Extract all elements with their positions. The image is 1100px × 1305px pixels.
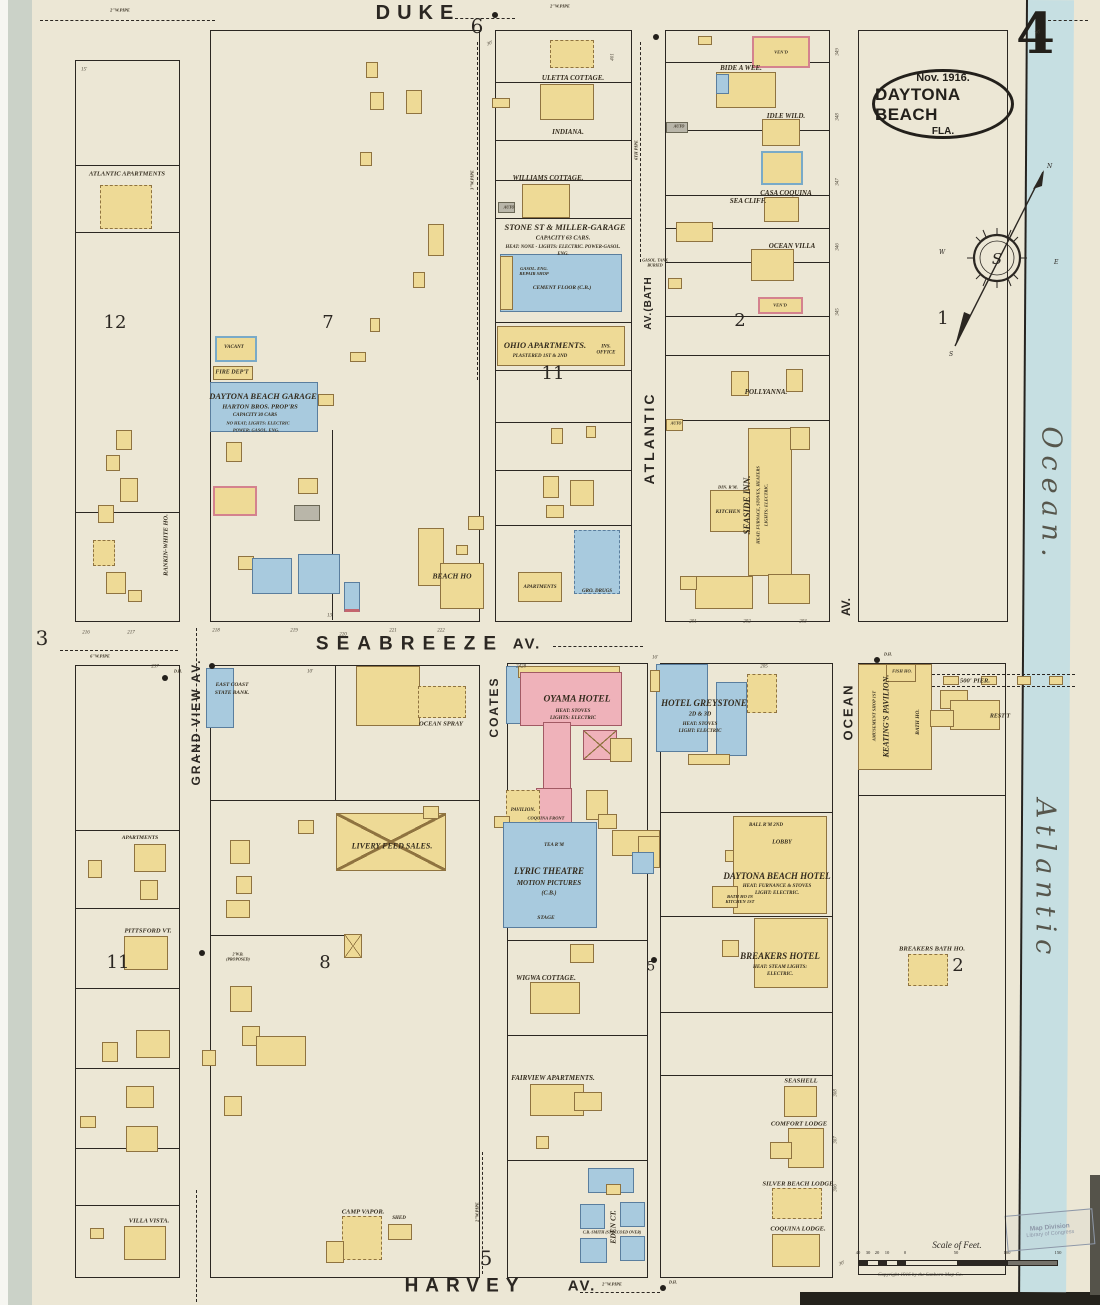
map-label: OCEAN VILLA — [769, 242, 815, 250]
lot-number: 217 — [127, 631, 135, 636]
building — [406, 90, 422, 114]
lot-line — [665, 262, 830, 263]
building — [344, 934, 362, 958]
map-label: KITCHEN — [716, 509, 741, 515]
building — [298, 478, 318, 494]
lot-line — [75, 908, 180, 909]
map-label: D.H. — [669, 1281, 677, 1286]
building — [213, 486, 257, 516]
building — [551, 428, 563, 444]
lot-number: 348 — [836, 113, 841, 121]
map-label: EDEN CT. — [610, 1210, 619, 1243]
lot-line — [210, 935, 350, 936]
building — [413, 272, 425, 288]
map-label: 2'W.B. (PROPOSED) — [226, 952, 250, 961]
building — [388, 1224, 412, 1240]
street-atlantic-av-bath: AV.(BATH — [644, 276, 654, 329]
building — [680, 576, 697, 590]
street-seabreeze-av: AV. — [513, 637, 542, 652]
map-label: COQUINA LODGE. — [770, 1225, 825, 1232]
hydrant-dot — [162, 675, 168, 681]
scan-edge-bottom-dark — [800, 1292, 1100, 1305]
lot-line — [660, 812, 833, 813]
pipe-dashed-line — [553, 646, 643, 647]
building — [423, 806, 439, 819]
lot-line — [507, 1160, 648, 1161]
building — [716, 74, 729, 94]
pipe-dashed-line — [932, 674, 1075, 675]
building — [536, 1136, 549, 1149]
map-label: VILLA VISTA. — [129, 1217, 169, 1224]
pipe-dashed-line — [196, 1190, 197, 1302]
map-label: LOBBY — [772, 840, 792, 847]
lot-line — [75, 830, 180, 831]
building — [456, 545, 468, 555]
map-label: APARTMENTS — [122, 835, 158, 841]
map-label: AUTO — [674, 125, 685, 130]
lot-number: 349 — [836, 48, 841, 56]
building — [124, 1226, 166, 1260]
building — [370, 92, 384, 110]
building — [226, 442, 242, 462]
map-label: FISH HO. — [892, 668, 912, 673]
map-label: HEAT: STOVES — [683, 722, 718, 728]
building — [550, 40, 594, 68]
lot-line — [75, 1205, 180, 1206]
building — [574, 530, 620, 594]
building — [116, 430, 132, 450]
map-label: COQUINA FRONT — [528, 815, 565, 820]
building — [230, 840, 250, 864]
building — [124, 936, 168, 970]
lot-number: 13' — [327, 614, 333, 619]
building — [1049, 676, 1063, 685]
lot-line — [660, 1012, 833, 1013]
building — [620, 1236, 645, 1261]
lot-number: 2428 — [516, 665, 526, 670]
map-label: HEAT: STEAM LIGHTS: — [753, 965, 807, 971]
building — [620, 1202, 645, 1227]
block-number: 11 — [107, 954, 130, 972]
map-label: RANKIN-WHITE HO. — [162, 514, 169, 576]
lot-line — [507, 1035, 648, 1036]
lot-number: 237 — [151, 665, 159, 670]
lot-number: 10' — [307, 670, 313, 675]
map-label: CEMENT FLOOR (C.B.) — [533, 285, 591, 291]
building — [761, 151, 803, 185]
lot-number: 221 — [389, 629, 397, 634]
map-label: CASA COQUINA — [760, 189, 812, 197]
building — [120, 478, 138, 502]
map-label: LYRIC THEATRE — [514, 866, 584, 876]
map-label: DIN. R'M. — [718, 484, 738, 489]
block-outline — [210, 665, 480, 1278]
map-label: BATH HO. — [915, 709, 921, 735]
map-label: INDIANA. — [552, 128, 584, 136]
map-label: FAIRVIEW APARTMENTS. — [511, 1074, 595, 1082]
building — [326, 1241, 344, 1263]
building — [98, 505, 114, 523]
lot-number: 347 — [836, 178, 841, 186]
map-label: DAYTONA BEACH HOTEL — [723, 871, 830, 881]
map-label: OHIO APARTMENTS. — [504, 341, 586, 351]
block-number: 6 — [471, 16, 484, 36]
map-label: HEAT: FURNACE, STOVES, HEATERS — [755, 466, 760, 544]
lot-line — [495, 470, 632, 471]
pipe-dashed-line — [1048, 20, 1088, 21]
pipe-dashed-line — [580, 1292, 660, 1293]
building — [695, 576, 753, 609]
building — [344, 582, 360, 612]
map-label: HOTEL GREYSTONE — [661, 698, 747, 708]
hydrant-dot — [199, 950, 205, 956]
building — [747, 674, 777, 713]
lot-number: 308 — [834, 1089, 839, 1097]
map-label: CAPACITY 63 CARS. — [536, 236, 591, 243]
map-label: 500' PIER. — [960, 677, 990, 684]
building — [224, 1096, 242, 1116]
map-label: BREAKERS HOTEL — [740, 951, 820, 961]
map-label: GRO. DRUGS — [582, 589, 612, 595]
lot-number: 30' — [838, 1261, 845, 1268]
lot-line — [75, 512, 180, 513]
building — [126, 1086, 154, 1108]
map-label: LIVERY FEED SALES. — [352, 841, 433, 850]
building — [128, 590, 142, 602]
map-label: NO HEAT; LIGHTS: ELECTRIC — [226, 420, 289, 425]
building — [768, 574, 810, 604]
map-label: LIGHTS: ELECTRIC — [550, 716, 596, 722]
pipe-dashed-line — [40, 20, 215, 21]
building — [650, 670, 660, 692]
map-label: REST'T — [990, 714, 1010, 721]
map-label: D.H. — [884, 653, 892, 658]
building — [252, 558, 292, 594]
pipe-dashed-line — [196, 628, 197, 762]
building — [676, 222, 713, 242]
lot-line — [660, 1075, 833, 1076]
building — [230, 986, 252, 1012]
building — [698, 36, 712, 45]
pipe-dashed-line — [60, 650, 178, 651]
lot-line — [495, 82, 632, 83]
building — [136, 1030, 170, 1058]
map-label: TEA R'M — [544, 843, 564, 849]
building — [772, 1234, 820, 1267]
map-label: SEASIDE INN. — [742, 475, 752, 534]
lot-line — [495, 218, 632, 219]
map-label: PLASTERED 1ST & 2ND — [513, 354, 568, 360]
map-label: 6TH PIPE — [633, 140, 638, 160]
building — [80, 1116, 96, 1128]
map-label: BREAKERS BATH HO. — [899, 945, 965, 952]
building — [580, 1238, 607, 1263]
building — [632, 852, 654, 874]
lot-line — [495, 140, 632, 141]
pipe-dashed-line — [932, 686, 1075, 687]
map-label: AUTO — [671, 422, 682, 427]
block-number: 12 — [104, 314, 127, 332]
map-label: KEATING'S PAVILION. — [881, 675, 890, 758]
lot-line — [495, 422, 632, 423]
building — [788, 1128, 824, 1168]
map-label: BALL R'M 2ND — [749, 823, 783, 829]
block-outline — [858, 30, 1008, 622]
building — [543, 722, 571, 792]
building — [943, 676, 959, 685]
building — [540, 84, 594, 120]
block-number: 7 — [322, 314, 333, 332]
block-number: 1 — [937, 310, 948, 328]
building — [202, 1050, 216, 1066]
lot-line — [495, 322, 632, 323]
lot-number: 216 — [82, 631, 90, 636]
building — [106, 572, 126, 594]
map-label: C.B.-SMITH (STUCCOED OVER) — [583, 1231, 641, 1236]
street-ocean: OCEAN — [842, 684, 855, 741]
map-label: GASOL. ENG. REPAIR SHOP — [519, 266, 548, 276]
building — [546, 505, 564, 518]
building — [318, 394, 334, 406]
building — [1017, 676, 1031, 685]
map-label: 2D & 3D — [689, 712, 711, 719]
street-duke: DUKE — [376, 3, 461, 23]
building — [570, 480, 594, 506]
block-number: 3 — [36, 628, 49, 648]
building — [598, 814, 617, 829]
building — [574, 1092, 602, 1111]
building — [134, 844, 166, 872]
block-number: 2 — [952, 957, 963, 975]
map-label: LIGHT: ELECTRIC — [679, 729, 722, 735]
map-label: BATH HO IN KITCHEN 1ST — [726, 894, 755, 904]
hydrant-dot — [651, 957, 657, 963]
building — [716, 682, 747, 756]
building — [226, 900, 250, 918]
building — [256, 1036, 306, 1066]
map-label: CAPACITY 30 CARS — [233, 413, 277, 419]
lot-number: 345 — [836, 308, 841, 316]
map-label: HEAT: NONE - LIGHTS: ELECTRIC. POWER-GAS… — [506, 245, 621, 251]
building — [370, 318, 380, 332]
map-label: AUTO — [504, 206, 515, 211]
svg-text:E: E — [1053, 259, 1059, 266]
map-label: DAYTONA BEACH GARAGE — [209, 392, 317, 402]
building — [770, 1142, 792, 1159]
pipe-dashed-line — [640, 42, 641, 262]
block-number: 11 — [542, 365, 565, 383]
lot-number: 218 — [212, 629, 220, 634]
map-label: AMUSEMENT SHOP 1ST — [871, 691, 876, 741]
map-label: STAGE — [537, 915, 554, 921]
lot-number: 30' — [486, 41, 493, 48]
building — [751, 249, 794, 281]
street-harvey: HARVEY — [405, 1277, 526, 1296]
building — [586, 426, 596, 438]
map-label: SILVER BEACH LODGE — [763, 1180, 834, 1187]
street-coates: COATES — [488, 676, 500, 737]
library-stamp: Map Division Library of Congress — [1005, 1208, 1096, 1252]
pipe-dashed-line — [477, 42, 478, 380]
hydrant-dot — [660, 1285, 666, 1291]
block-number: 8 — [319, 954, 330, 972]
map-label: OCEAN SPRAY — [419, 720, 463, 727]
building — [100, 185, 152, 229]
hydrant-dot — [874, 657, 880, 663]
building — [610, 738, 632, 762]
street-ocean-av: AV. — [840, 598, 852, 616]
sanborn-map-sheet: Ocean. Atlantic 4 Nov. 1916. DAYTONA BEA… — [0, 0, 1100, 1305]
building — [468, 516, 484, 530]
map-label: LIGHTS: ELECTRIC. — [763, 484, 768, 527]
lot-number: 306 — [834, 1184, 839, 1192]
building — [790, 427, 810, 450]
map-label: VEN'D — [773, 302, 787, 307]
svg-text:N: N — [1046, 163, 1053, 170]
lot-number: 203 — [799, 620, 807, 625]
building — [543, 476, 559, 498]
map-label: 6"W.PIPE — [90, 653, 110, 658]
building — [90, 1228, 104, 1239]
map-label: EAST COAST — [216, 682, 249, 688]
building — [570, 944, 594, 963]
building — [350, 352, 366, 362]
lot-line — [75, 165, 180, 166]
map-label: ATLANTIC APARTMENTS — [89, 170, 165, 177]
map-label: SEA CLIFF. — [730, 197, 766, 205]
map-label: SHED — [392, 1216, 406, 1222]
block-number: 2 — [734, 312, 745, 330]
map-label: D.H. — [174, 670, 182, 675]
map-label: POWER: GASOL. ENG. — [233, 427, 279, 432]
building — [492, 98, 510, 108]
map-label: 2"W.PIPE — [474, 1202, 479, 1222]
building — [908, 954, 948, 986]
pipe-dashed-line — [455, 18, 515, 19]
building — [88, 860, 102, 878]
map-label: WILLIAMS COTTAGE. — [513, 174, 584, 182]
building — [298, 554, 340, 594]
lot-line — [335, 665, 336, 800]
map-label: POLLYANNA. — [745, 388, 788, 396]
map-label: STONE ST & MILLER-GARAGE — [505, 223, 626, 233]
map-label: 2"W.PIPE — [110, 7, 130, 12]
map-label: HARTON BROS. PROP'RS — [222, 403, 298, 410]
lot-number: 401 — [611, 53, 616, 61]
lot-line — [665, 420, 830, 421]
lot-number: 220 — [339, 633, 347, 638]
map-label: 2"W.PIPE — [602, 1281, 622, 1286]
lot-line — [665, 355, 830, 356]
map-label: HEAT: FURNANCE & STOVES — [743, 884, 812, 890]
building — [236, 876, 252, 894]
map-label: CAMP VAPOR. — [342, 1208, 385, 1215]
lot-number: 205 — [760, 665, 768, 670]
building — [522, 184, 570, 218]
map-label: HEAT: STOVES — [556, 709, 591, 715]
lot-number: 222 — [437, 629, 445, 634]
map-label: 2"W.PIPE — [550, 3, 570, 8]
lot-number: 219 — [290, 629, 298, 634]
building — [418, 686, 466, 718]
building — [606, 1184, 621, 1195]
lot-line — [495, 525, 632, 526]
map-label: STATE BANK. — [215, 690, 249, 696]
lot-number: 346 — [836, 243, 841, 251]
building — [530, 982, 580, 1014]
lot-number: 202 — [743, 620, 751, 625]
map-label: COMFORT LODGE — [771, 1120, 827, 1127]
building — [356, 666, 420, 726]
map-label: BEACH HO — [433, 573, 472, 582]
lot-line — [75, 988, 180, 989]
lot-line — [75, 232, 180, 233]
building — [428, 224, 444, 256]
building — [294, 505, 320, 521]
map-label: ENG. — [557, 252, 568, 258]
lot-line — [665, 316, 830, 317]
building — [580, 1204, 605, 1229]
map-label: IDLE WILD. — [767, 112, 805, 120]
scan-edge-left-gray — [8, 0, 32, 1305]
building — [786, 369, 803, 392]
building — [298, 820, 314, 834]
block-number: 5 — [480, 1248, 493, 1268]
map-label: FIRE DEP'T — [215, 370, 248, 377]
map-label: APARTMENTS — [524, 585, 557, 591]
map-label: MOTION PICTURES — [517, 879, 581, 887]
map-label: ULETTA COTTAGE. — [542, 74, 604, 82]
hydrant-dot — [209, 663, 215, 669]
building — [342, 1216, 382, 1260]
map-label: SEASHELL — [784, 1077, 817, 1084]
map-label: PAVILION. — [511, 808, 535, 814]
lot-number: 201 — [689, 620, 697, 625]
building — [93, 540, 115, 566]
building — [784, 1086, 817, 1117]
building — [772, 1188, 822, 1219]
building — [366, 62, 378, 78]
lot-number: 15' — [81, 68, 87, 73]
lot-line — [210, 800, 480, 801]
building — [764, 197, 799, 222]
lot-number: 16' — [652, 656, 658, 661]
building — [440, 563, 484, 609]
hydrant-dot — [653, 34, 659, 40]
building — [500, 256, 513, 310]
building — [930, 710, 954, 727]
building — [106, 455, 120, 471]
map-label: 3"W.PIPE — [469, 170, 474, 190]
building — [688, 754, 730, 765]
hydrant-dot — [492, 12, 498, 18]
map-label: ELECTRIC. — [767, 972, 793, 978]
ocean-word-upper: Ocean. — [1036, 426, 1067, 563]
building — [126, 1126, 158, 1152]
map-label: OYAMA HOTEL — [543, 695, 610, 706]
map-label: GASOL. TANK BURIED — [642, 258, 668, 267]
ocean-word-lower: Atlantic — [1030, 799, 1061, 962]
building — [500, 254, 622, 312]
building — [102, 1042, 118, 1062]
map-label: WIGWA COTTAGE. — [516, 974, 576, 982]
lot-line — [858, 795, 1006, 796]
lot-line — [507, 940, 648, 941]
building — [762, 119, 800, 146]
map-label: (C.B.) — [542, 891, 557, 898]
lot-line — [75, 1068, 180, 1069]
map-label: VEN'D — [774, 49, 788, 54]
